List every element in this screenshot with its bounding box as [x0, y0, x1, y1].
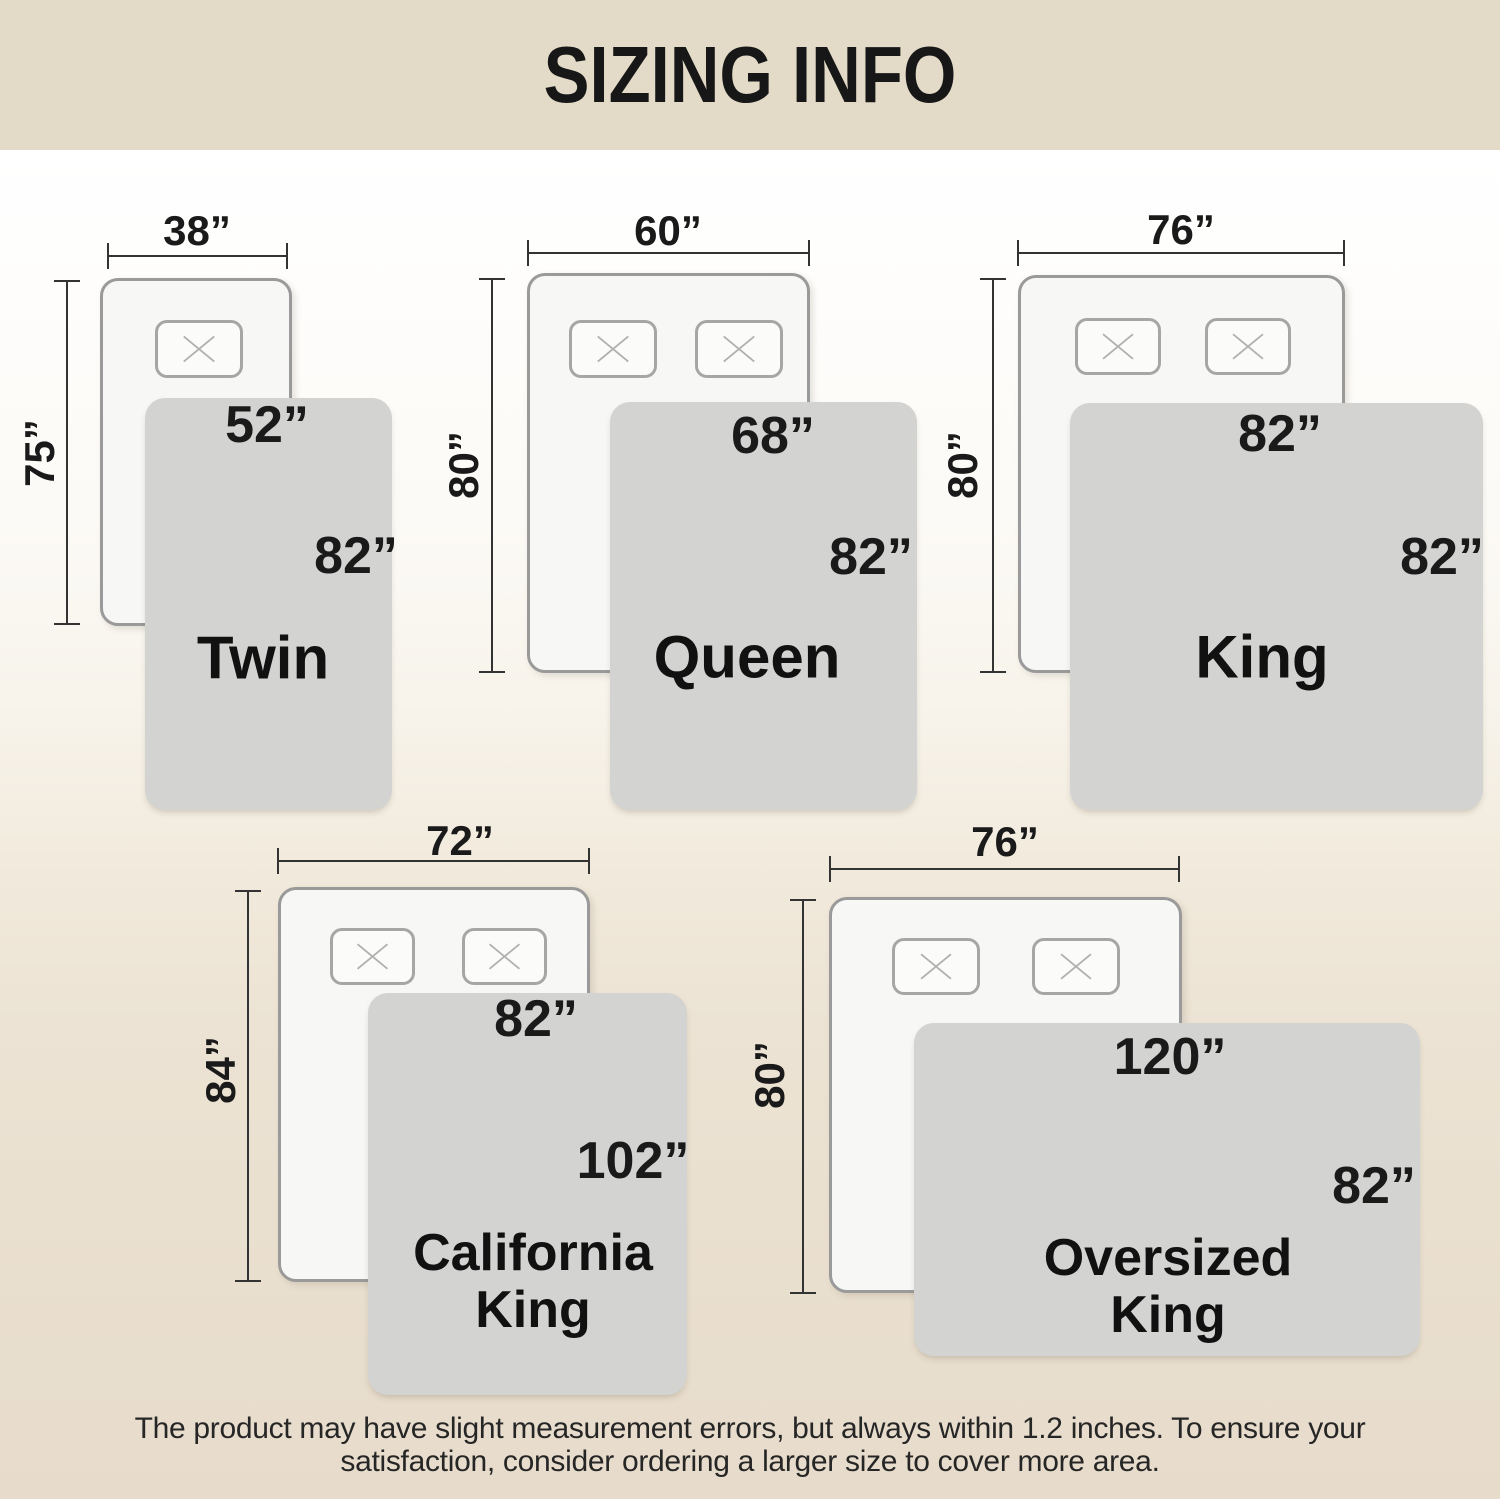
pillow-icon: [892, 938, 980, 995]
header-banner: SIZING INFO: [0, 0, 1500, 150]
mattress-width-dim-label: 72”: [426, 817, 494, 865]
pillow-icon: [1205, 318, 1291, 375]
pillow-icon: [695, 320, 783, 378]
blanket-width-label: 82”: [494, 989, 578, 1049]
blanket-width-label: 68”: [731, 406, 815, 466]
pillow-cross-icon: [1035, 941, 1117, 992]
blanket-width-label: 52”: [225, 395, 309, 455]
size-name-line1: Oversized: [1044, 1230, 1293, 1287]
blanket-width-label: 120”: [1114, 1027, 1227, 1087]
size-name-line2: King: [1044, 1287, 1293, 1344]
blanket-swatch: [1070, 403, 1483, 810]
sizing-infographic: SIZING INFO 38” 75” 52” 82” Twin 60” 80”…: [0, 0, 1500, 1499]
pillow-icon: [462, 928, 547, 985]
pillow-cross-icon: [895, 941, 977, 992]
mattress-width-dim-line: [829, 868, 1180, 870]
blanket-length-label: 82”: [829, 527, 913, 587]
pillow-cross-icon: [158, 323, 240, 375]
pillow-icon: [155, 320, 243, 378]
mattress-length-dim-label: 75”: [16, 419, 64, 487]
disclaimer-line2: satisfaction, consider ordering a larger…: [0, 1445, 1500, 1478]
mattress-length-dim-label: 80”: [440, 431, 488, 499]
pillow-cross-icon: [1208, 321, 1288, 372]
mattress-width-dim-line: [107, 255, 288, 257]
size-name-line2: King: [413, 1282, 653, 1339]
pillow-cross-icon: [465, 931, 544, 982]
pillow-icon: [330, 928, 415, 985]
mattress-length-dim-line: [491, 278, 493, 673]
mattress-width-dim-label: 76”: [1147, 206, 1215, 254]
pillow-icon: [1032, 938, 1120, 995]
mattress-width-dim-label: 60”: [634, 207, 702, 255]
blanket-length-label: 82”: [1332, 1156, 1416, 1216]
size-name-label: Queen: [654, 623, 841, 692]
mattress-length-dim-label: 80”: [939, 431, 987, 499]
size-name-line1: California: [413, 1225, 653, 1282]
mattress-width-dim-label: 38”: [163, 207, 231, 255]
mattress-length-dim-line: [992, 278, 994, 673]
size-name-label: California King: [413, 1225, 653, 1339]
blanket-width-label: 82”: [1238, 404, 1322, 464]
pillow-cross-icon: [333, 931, 412, 982]
mattress-width-dim-label: 76”: [971, 818, 1039, 866]
mattress-length-dim-line: [247, 890, 249, 1282]
pillow-cross-icon: [572, 323, 654, 375]
mattress-length-dim-label: 84”: [197, 1036, 245, 1104]
pillow-cross-icon: [1078, 321, 1158, 372]
blanket-swatch: [145, 398, 392, 810]
blanket-length-label: 102”: [577, 1131, 690, 1191]
mattress-length-dim-label: 80”: [746, 1041, 794, 1109]
size-name-label: Twin: [197, 624, 329, 693]
pillow-icon: [1075, 318, 1161, 375]
size-name-label: Oversized King: [1044, 1230, 1293, 1344]
pillow-cross-icon: [698, 323, 780, 375]
disclaimer-line1: The product may have slight measurement …: [0, 1412, 1500, 1445]
blanket-length-label: 82”: [314, 526, 398, 586]
size-name-label: King: [1195, 623, 1328, 692]
pillow-icon: [569, 320, 657, 378]
blanket-length-label: 82”: [1400, 527, 1484, 587]
disclaimer-text: The product may have slight measurement …: [0, 1412, 1500, 1478]
mattress-length-dim-line: [66, 280, 68, 625]
mattress-length-dim-line: [802, 899, 804, 1294]
page-title: SIZING INFO: [544, 29, 957, 121]
